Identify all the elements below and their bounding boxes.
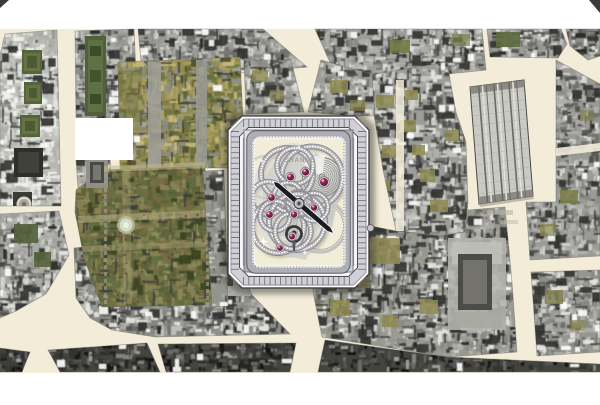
svg-text:CHANEL: CHANEL: [284, 158, 315, 164]
